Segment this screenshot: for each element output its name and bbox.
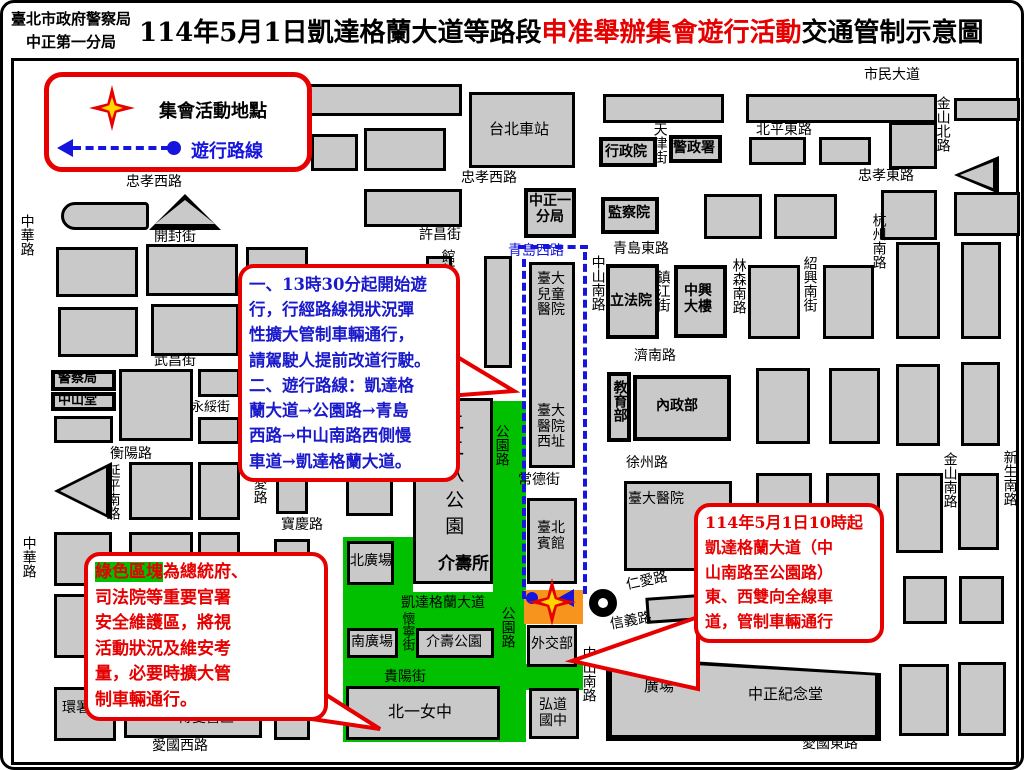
- map-label: 臺北 賓館: [537, 521, 565, 552]
- city-block: [484, 256, 512, 368]
- city-block: [603, 94, 724, 123]
- map-label: 臺大 醫院 西址: [537, 404, 565, 451]
- title-prefix: 114年5月1日凱達格蘭大道等路段: [139, 18, 541, 48]
- parade-route-line: [518, 245, 588, 249]
- legend-route-arrow-icon: [57, 139, 73, 157]
- map-label: 立法院: [610, 294, 652, 310]
- legend-assembly-label: 集會活動地點: [159, 97, 267, 123]
- map-label: 北平東路: [756, 123, 812, 139]
- city-block: [881, 190, 937, 240]
- map-label: 鎮江街: [654, 270, 670, 312]
- map-label: 公園路: [493, 424, 509, 466]
- city-block: [954, 192, 1020, 236]
- map-label: 北廣場: [350, 554, 392, 570]
- map-label: 永綏街: [191, 401, 230, 416]
- map-label: 凱達格蘭大道: [401, 596, 485, 612]
- city-block: [899, 664, 949, 736]
- city-block: [819, 137, 871, 165]
- city-block: [749, 137, 806, 165]
- map-label: 臺大 兒童 醫院: [537, 272, 565, 319]
- map-label: 新生南路: [1001, 450, 1017, 506]
- green-zone-highlight: 綠色區塊: [95, 562, 163, 582]
- map-label: 濟南路: [634, 349, 676, 365]
- city-block: [146, 244, 238, 296]
- legend-box: 集會活動地點 遊行路線: [44, 72, 312, 172]
- map-label: 貴陽街: [384, 670, 426, 686]
- callout-march-info-text: 一、13時30分起開始遊 行，行經路線視狀況彈 性擴大管制車輛通行， 請駕駛人提…: [249, 272, 449, 474]
- map-label: 衡陽路: [110, 447, 152, 463]
- city-block: [54, 416, 113, 443]
- map-label: 中興 大樓: [684, 284, 712, 315]
- map-label: 介壽公園: [426, 635, 482, 651]
- map-label: 中華路: [18, 214, 34, 256]
- city-block: [129, 462, 193, 520]
- parade-route-line: [583, 252, 587, 594]
- callout-control-info-text: 114年5月1日10時起 凱達格蘭大道（中 山南路至公園路） 東、西雙向全線車 …: [705, 511, 873, 635]
- map-label: 市民大道: [864, 68, 920, 84]
- map-label: 臺大醫院: [628, 492, 684, 508]
- agency-line2: 中正第一分局: [3, 31, 139, 54]
- map-label: 忠孝東路: [858, 169, 914, 185]
- legend-star-icon: [89, 85, 135, 131]
- city-block: [756, 368, 810, 444]
- city-block-triangle: [954, 156, 999, 194]
- map-label: 監察院: [608, 206, 650, 222]
- city-block: [959, 576, 1004, 624]
- map-label: 忠孝西路: [461, 171, 517, 187]
- map-label: 信義路: [609, 610, 653, 633]
- map-label: 外交部: [531, 637, 573, 653]
- map-label: 台北車站: [489, 121, 549, 138]
- city-block: [823, 265, 874, 339]
- callout-green-zone: 綠色區塊為總統府、 司法院等重要官署 安全維護區，將視 活動狀況及維安考 量，必…: [84, 552, 328, 721]
- restricted-green-zone: [526, 664, 583, 690]
- map-label: 仁愛路: [625, 570, 669, 594]
- page-title: 114年5月1日凱達格蘭大道等路段申准舉辦集會遊行活動交通管制示意圖: [139, 12, 984, 49]
- city-block: [704, 194, 762, 239]
- title-suffix: 交通管制示意圖: [801, 18, 983, 48]
- map-label: 中山南路: [589, 255, 605, 311]
- map-label: 紹興南街: [801, 256, 817, 312]
- city-block: [896, 473, 943, 553]
- city-block: [364, 189, 462, 227]
- city-block: [958, 473, 999, 550]
- city-block: [151, 304, 239, 356]
- city-block: [889, 122, 937, 169]
- city-block: [954, 98, 1020, 121]
- legend-route-dashes: [73, 146, 169, 150]
- map-label: 中正一 分局: [529, 194, 571, 225]
- map-label: 懷寧街: [399, 612, 414, 651]
- assembly-star-icon: [528, 578, 576, 626]
- map-label: 許昌街: [419, 228, 461, 244]
- map-label: 徐州路: [626, 456, 668, 472]
- city-block: [198, 462, 240, 520]
- map-canvas: 一、13時30分起開始遊 行，行經路線視狀況彈 性擴大管制車輛通行， 請駕駛人提…: [11, 58, 1019, 765]
- city-block: [746, 94, 937, 123]
- map-label: 警政署: [673, 141, 715, 157]
- map-label: 弘道 國中: [539, 698, 567, 729]
- city-block: [56, 247, 138, 297]
- map-label: 武昌街: [154, 354, 196, 370]
- map-label: 愛國西路: [152, 739, 208, 755]
- city-block: [896, 364, 940, 446]
- city-block: [961, 242, 1001, 339]
- city-block: [748, 265, 800, 339]
- traffic-control-map-page: 臺北市政府警察局 中正第一分局 114年5月1日凱達格蘭大道等路段申准舉辦集會遊…: [0, 0, 1024, 770]
- map-label: 警察局: [58, 372, 97, 387]
- city-block: [903, 576, 947, 624]
- map-label: 忠孝西路: [126, 175, 182, 191]
- map-label: 中華路: [20, 536, 36, 578]
- map-label: 中山南路: [580, 646, 596, 702]
- map-label: 中正紀念堂: [748, 686, 823, 703]
- map-label: 公園路: [499, 606, 515, 648]
- city-block: [311, 134, 358, 171]
- legend-route-dot: [167, 141, 181, 155]
- callout-control-info: 114年5月1日10時起 凱達格蘭大道（中 山南路至公園路） 東、西雙向全線車 …: [694, 503, 884, 643]
- map-label: 行政院: [605, 145, 647, 161]
- city-block: [958, 662, 1006, 736]
- callout-march-info: 一、13時30分起開始遊 行，行經路線視狀況彈 性擴大管制車輛通行， 請駕駛人提…: [238, 264, 460, 482]
- map-label: 教育部: [611, 380, 627, 422]
- map-label: 金山南路: [941, 452, 957, 508]
- city-block: [58, 307, 138, 357]
- city-block: [61, 202, 149, 230]
- city-block: [774, 194, 837, 239]
- city-block: [961, 362, 1000, 446]
- map-label: 內政部: [656, 399, 698, 415]
- map-label: 延平南路: [104, 464, 120, 520]
- city-block: [198, 417, 240, 444]
- map-label: 自由 廣場: [644, 661, 674, 695]
- map-label: 介壽所: [438, 555, 489, 574]
- map-label: 金山北路: [934, 96, 950, 152]
- callout-green-zone-text: 綠色區塊為總統府、 司法院等重要官署 安全維護區，將視 活動狀況及維安考 量，必…: [95, 560, 317, 713]
- map-label: 南廣場: [351, 635, 393, 651]
- header: 臺北市政府警察局 中正第一分局 114年5月1日凱達格蘭大道等路段申准舉辦集會遊…: [3, 3, 1021, 58]
- city-block-triangle: [149, 194, 221, 230]
- map-label: 杭州南路: [870, 213, 886, 269]
- map-label: 愛國東路: [802, 737, 858, 753]
- map-label: 林森南路: [730, 258, 746, 314]
- map-label: 天津街: [651, 122, 667, 164]
- map-label: 開封街: [154, 230, 196, 246]
- map-label: 北一女中: [388, 703, 452, 721]
- map-label: 青島東路: [613, 242, 669, 258]
- map-label: 寶慶路: [281, 518, 323, 534]
- city-block: [119, 369, 193, 441]
- east-gate-roundabout: [589, 589, 617, 617]
- legend-route-label: 遊行路線: [191, 137, 263, 163]
- map-label: 中山堂: [58, 394, 97, 409]
- agency-line1: 臺北市政府警察局: [3, 8, 139, 31]
- legend-assembly-row: 集會活動地點: [49, 85, 307, 133]
- city-block: [198, 369, 240, 397]
- city-block: [829, 368, 880, 444]
- city-block: [896, 242, 940, 339]
- agency-name: 臺北市政府警察局 中正第一分局: [3, 8, 139, 53]
- title-highlight: 申准舉辦集會遊行活動: [541, 18, 801, 48]
- legend-route-row: 遊行路線: [49, 135, 307, 165]
- parade-route-line: [522, 259, 526, 599]
- city-block: [364, 128, 446, 171]
